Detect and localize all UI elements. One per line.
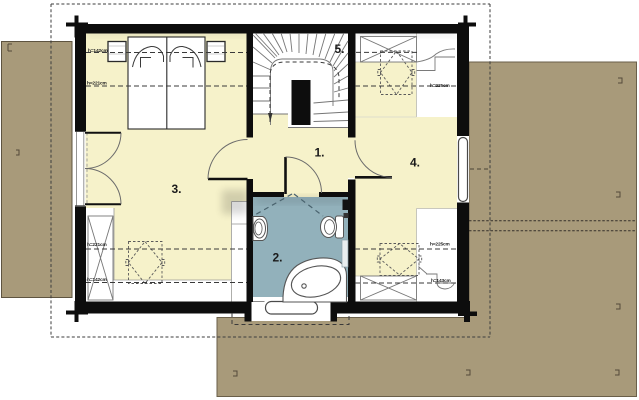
svg-text:h=225cm: h=225cm (430, 242, 450, 248)
svg-text:h=221cm: h=221cm (87, 242, 107, 248)
svg-text:h=225cm: h=225cm (430, 83, 450, 89)
svg-text:h=143cm: h=143cm (431, 278, 451, 284)
svg-text:4.: 4. (410, 156, 420, 170)
svg-text:2.: 2. (273, 251, 283, 265)
svg-text:h=142cm: h=142cm (88, 48, 108, 54)
svg-text:h=221cm: h=221cm (87, 81, 107, 87)
svg-text:5.: 5. (335, 42, 345, 56)
svg-text:h=142cm: h=142cm (87, 277, 107, 283)
svg-text:1.: 1. (315, 146, 325, 160)
svg-text:3.: 3. (172, 182, 182, 196)
